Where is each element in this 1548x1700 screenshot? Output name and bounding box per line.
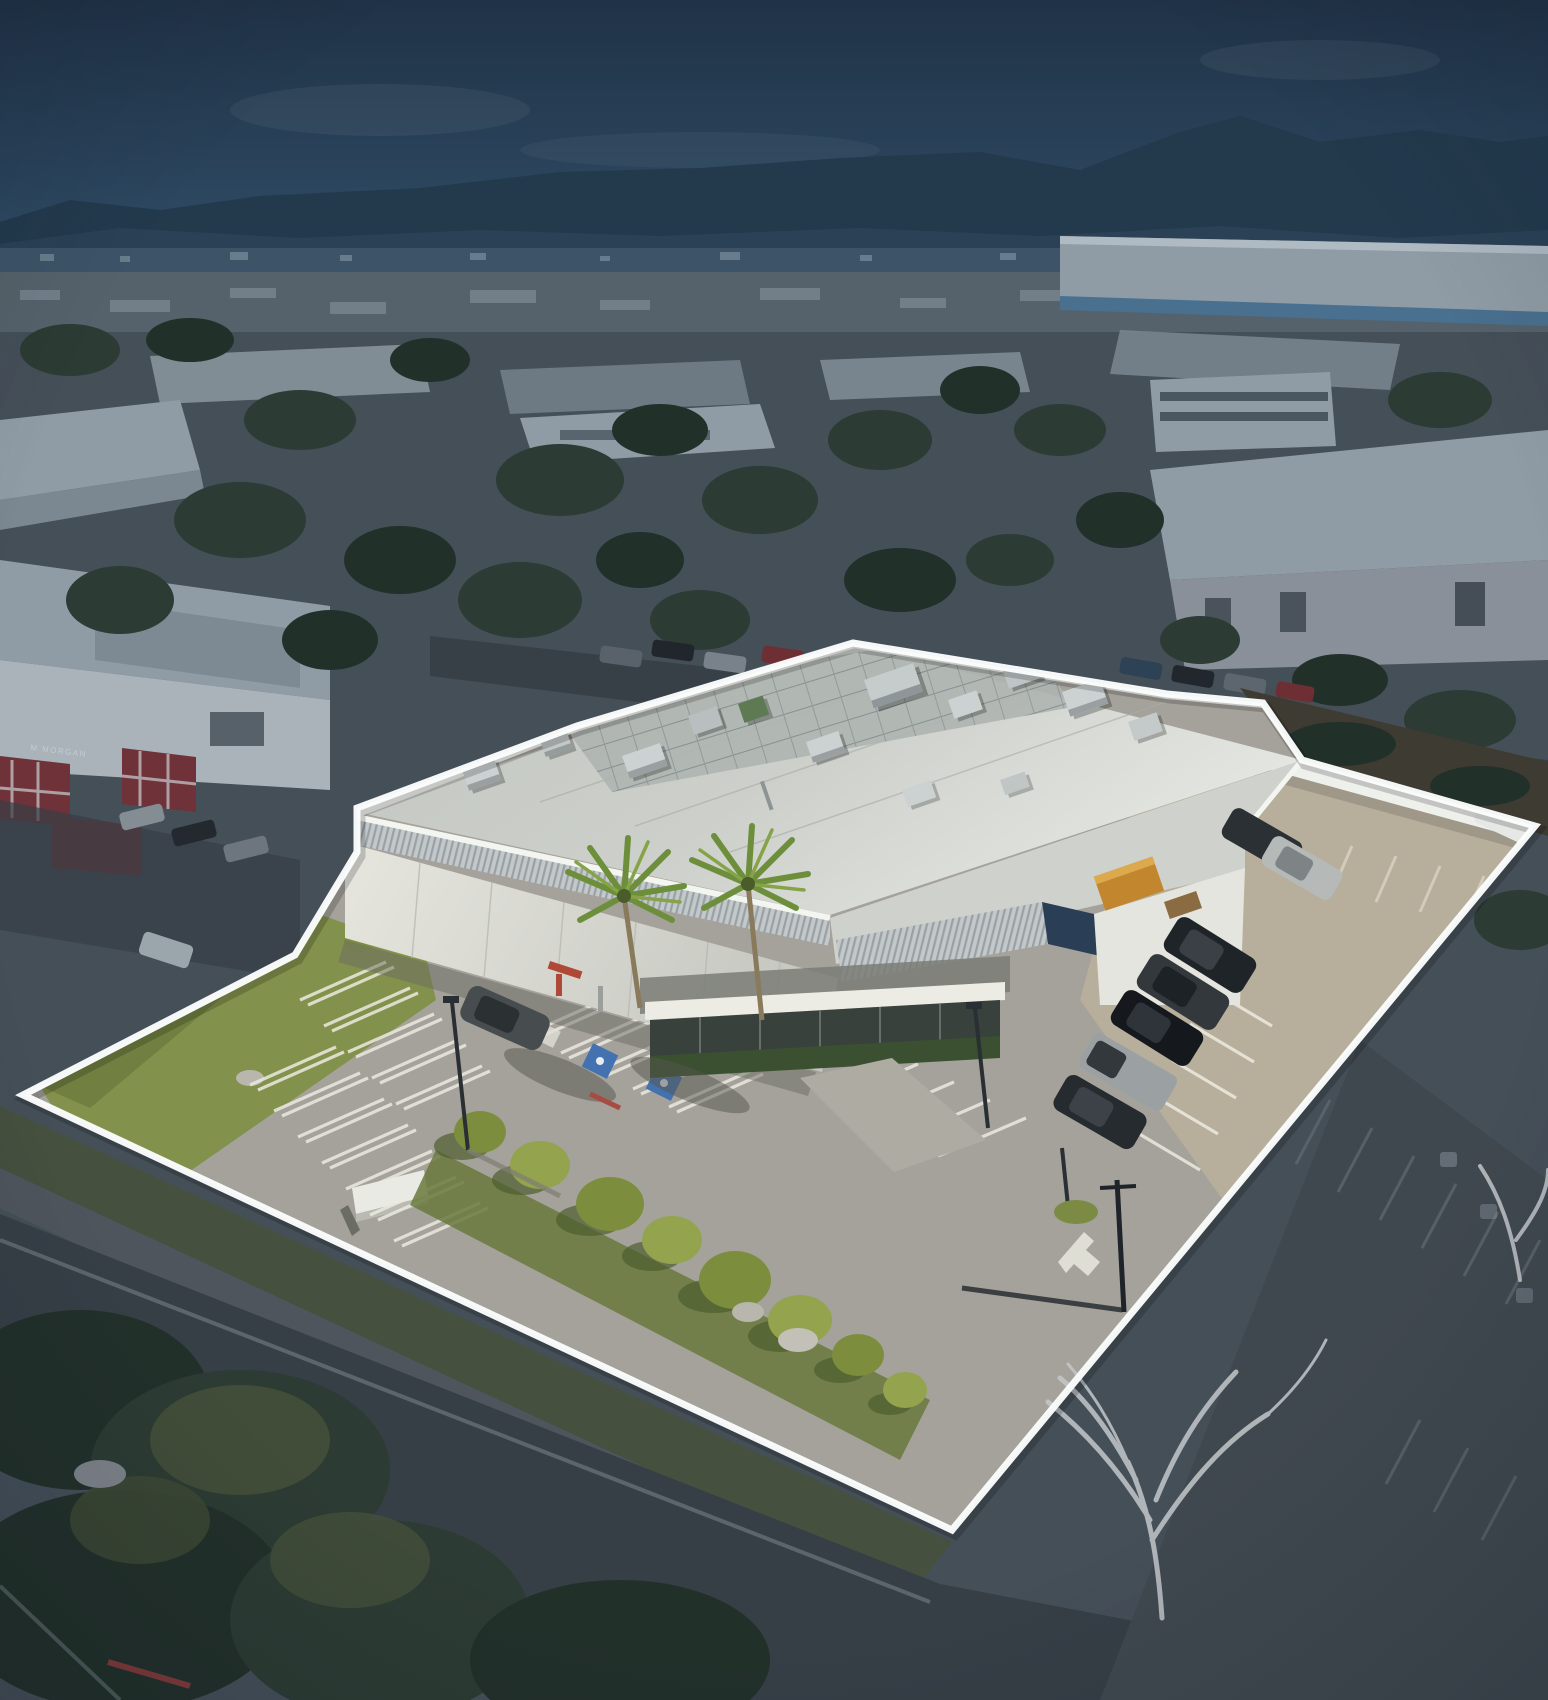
aerial-photo: M MORGAN (0, 0, 1548, 1700)
aerial-photo-canvas: M MORGAN (0, 0, 1548, 1700)
